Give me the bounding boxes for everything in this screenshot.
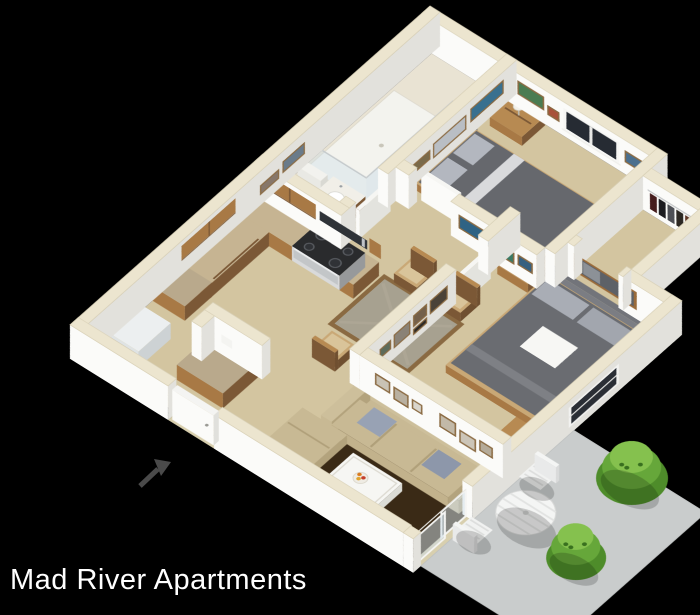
caption: Mad River Apartments — [10, 564, 307, 597]
floorplan-svg — [0, 40, 700, 615]
floorplan-3d-render: Mad River Apartments — [0, 0, 700, 615]
entry-arrow-icon — [134, 452, 180, 492]
